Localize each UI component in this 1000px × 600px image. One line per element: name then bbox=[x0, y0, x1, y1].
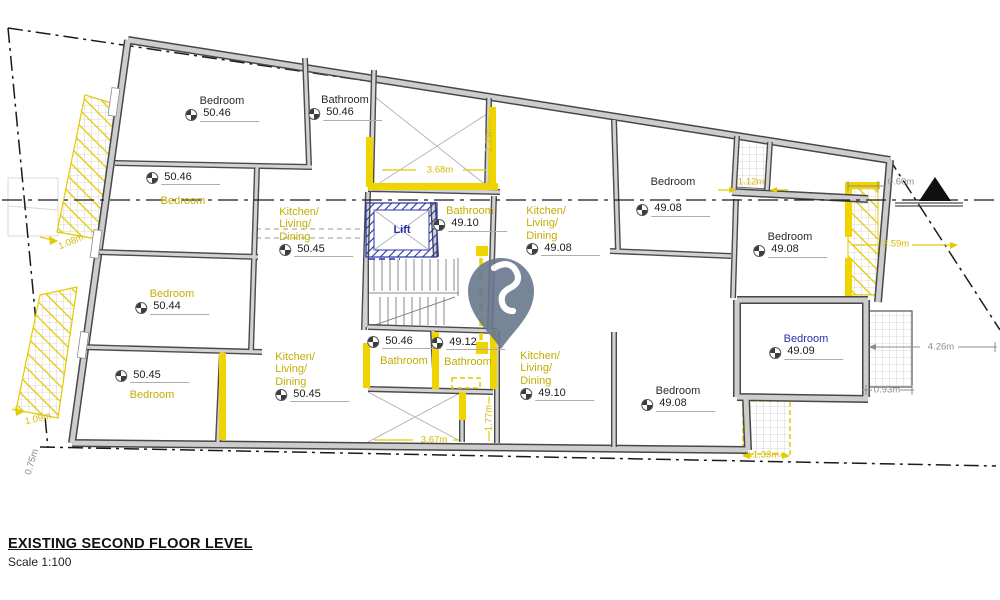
drawing-scale: Scale 1:100 bbox=[8, 555, 253, 569]
dimension-label: 2.59m bbox=[883, 239, 909, 250]
room-label-bedroom-left-2: Bedroom50.44 bbox=[135, 288, 209, 315]
room-label-kitchen-living-dining-bottom: Kitchen/Living/Dining49.10 bbox=[520, 350, 594, 401]
room-label-bedroom-top-right: Bedroom49.08 bbox=[636, 176, 710, 217]
floor-plan-page: Bedroom50.46Bathroom50.4650.46BedroomKit… bbox=[0, 0, 1000, 600]
room-label-bedroom-left-1: 50.46Bedroom bbox=[146, 171, 220, 208]
spot-level-icon bbox=[636, 204, 648, 216]
spot-level-icon bbox=[769, 347, 781, 359]
spot-level-icon bbox=[433, 219, 445, 231]
dimension-label: 4.26m bbox=[928, 342, 954, 353]
dimension-label: 1.08m bbox=[57, 232, 86, 252]
room-label-bathroom-center: Bathroom49.10 bbox=[433, 205, 507, 232]
title-block: EXISTING SECOND FLOOR LEVEL Scale 1:100 bbox=[8, 536, 253, 569]
dimension-label: 1.09m bbox=[24, 411, 52, 428]
dimension-label: 1.12m bbox=[738, 177, 764, 188]
dimension-label: 1.77m bbox=[484, 405, 495, 431]
room-label-kitchen-living-dining-left-bottom: Kitchen/Living/Dining50.45 bbox=[275, 351, 349, 402]
spot-level-icon bbox=[526, 243, 538, 255]
spot-level-icon bbox=[367, 336, 379, 348]
dimension-label: 0.93m bbox=[874, 385, 900, 396]
spot-level-icon bbox=[185, 109, 197, 121]
drawing-title: EXISTING SECOND FLOOR LEVEL bbox=[8, 536, 253, 552]
room-label-bedroom-right: Bedroom49.08 bbox=[753, 231, 827, 258]
room-label-kitchen-living-dining-left-top: Kitchen/Living/Dining50.45 bbox=[279, 206, 353, 257]
room-label-lift: Lift bbox=[393, 224, 410, 236]
spot-level-icon bbox=[146, 172, 158, 184]
spot-level-icon bbox=[275, 389, 287, 401]
room-label-bathroom-top-left: Bathroom50.46 bbox=[308, 94, 382, 121]
dimension-label: 0.60m bbox=[888, 177, 914, 188]
room-label-bathroom-bottom-1: 50.46Bathroom bbox=[367, 335, 441, 368]
labels-layer: Bedroom50.46Bathroom50.4650.46BedroomKit… bbox=[0, 0, 1000, 600]
room-label-kitchen-living-dining-center: Kitchen/Living/Dining49.08 bbox=[526, 205, 600, 256]
room-label-bedroom-bottom: Bedroom49.08 bbox=[641, 385, 715, 412]
room-label-bathroom-bottom-2: 49.12Bathroom bbox=[431, 336, 505, 369]
dimension-label: 0.75m bbox=[23, 448, 41, 476]
room-label-bedroom-top-left: Bedroom50.46 bbox=[185, 95, 259, 122]
spot-level-icon bbox=[135, 302, 147, 314]
dimension-label: 2.25m bbox=[484, 126, 495, 152]
dimension-label: 3.67m bbox=[421, 435, 447, 446]
spot-level-icon bbox=[279, 244, 291, 256]
spot-level-icon bbox=[520, 388, 532, 400]
spot-level-icon bbox=[431, 337, 443, 349]
room-label-bedroom-bottom-right: Bedroom49.09 bbox=[769, 333, 843, 360]
spot-level-icon bbox=[308, 108, 320, 120]
spot-level-icon bbox=[753, 245, 765, 257]
dimension-label: 1.33m bbox=[753, 450, 779, 461]
room-label-bedroom-left-3: 50.45Bedroom bbox=[115, 369, 189, 402]
spot-level-icon bbox=[115, 370, 127, 382]
spot-level-icon bbox=[641, 399, 653, 411]
dimension-label: 3.68m bbox=[427, 165, 453, 176]
